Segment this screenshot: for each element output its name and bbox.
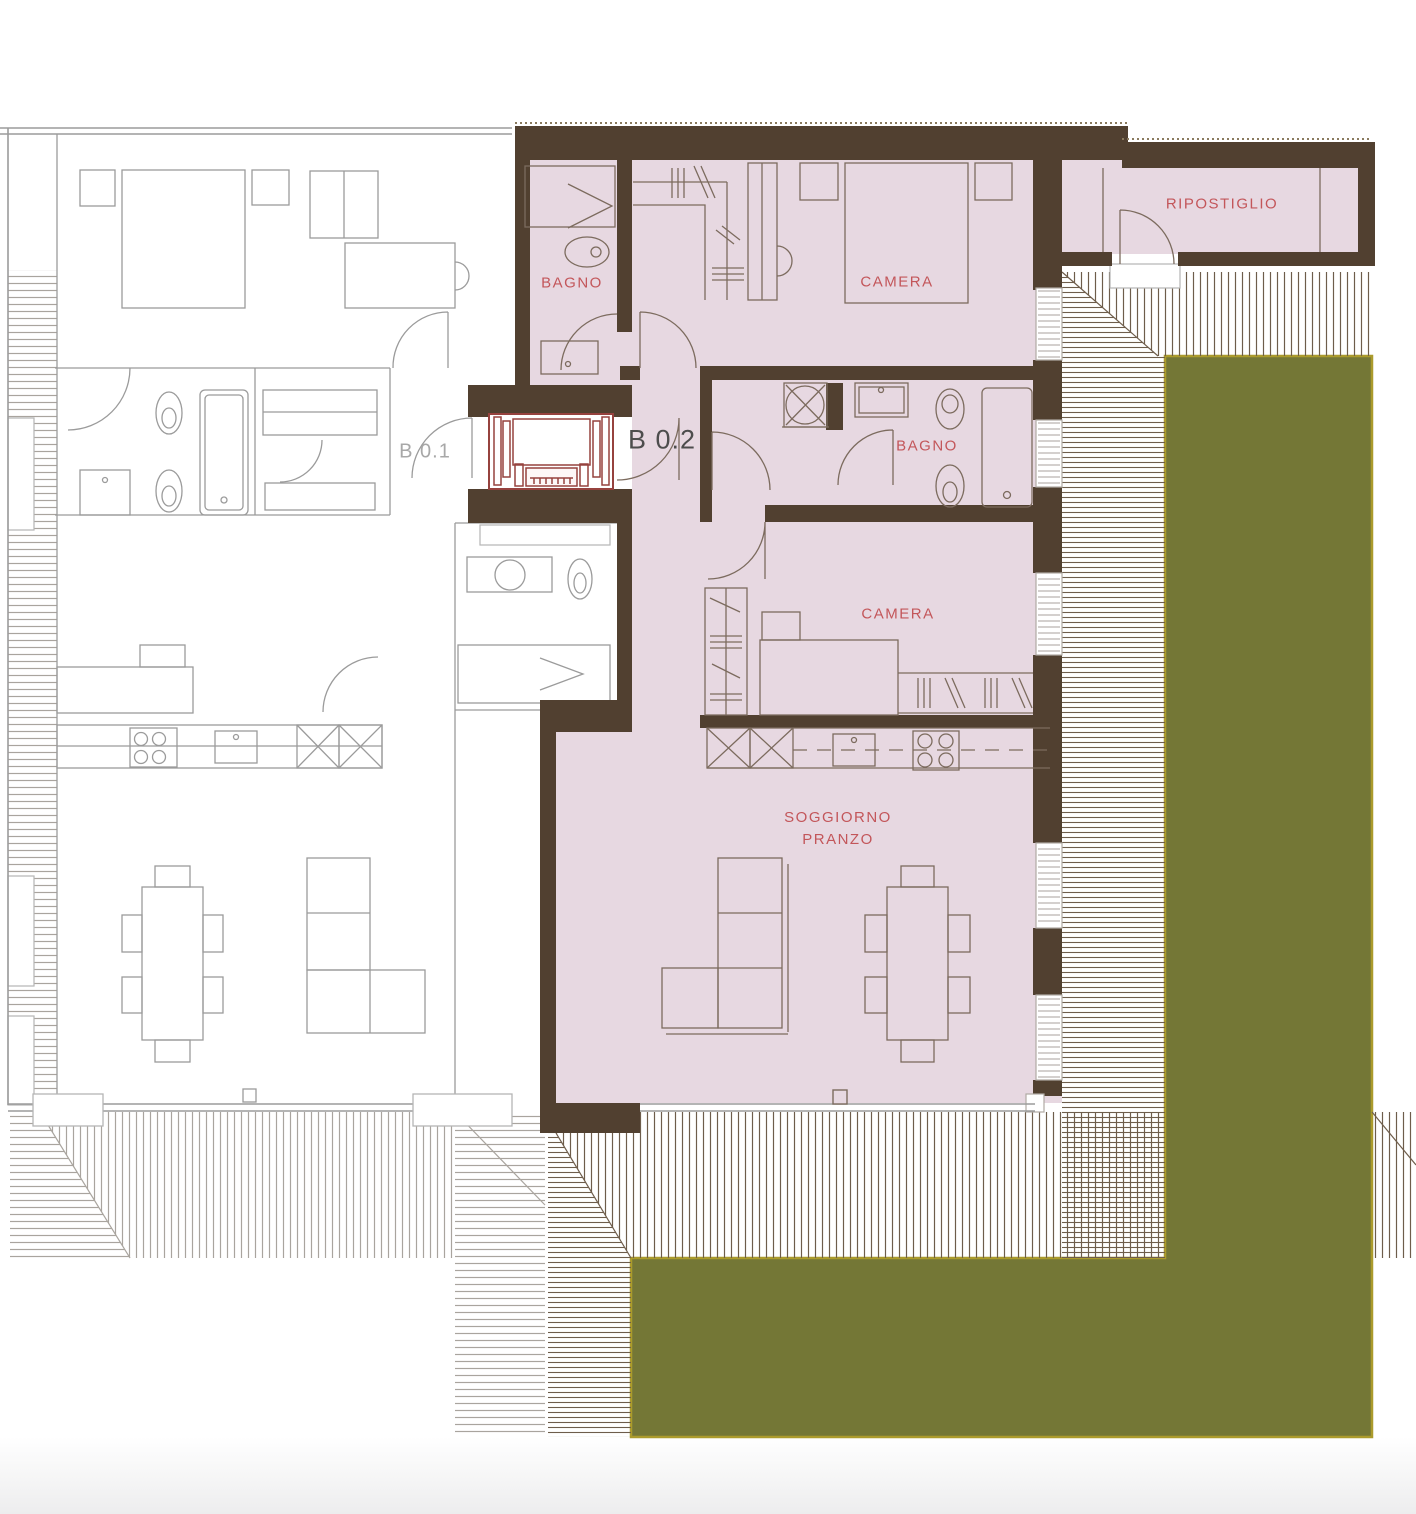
label-soggiorno-line2: PRANZO <box>784 829 892 851</box>
label-soggiorno: SOGGIORNO PRANZO <box>784 807 892 851</box>
label-bagno-2: BAGNO <box>896 438 958 455</box>
floor-plan-drawing <box>0 0 1416 1514</box>
label-camera-2: CAMERA <box>861 606 934 623</box>
label-neighbor-b01: B 0.1 <box>399 441 451 464</box>
elevator <box>480 414 613 545</box>
label-unit-b02: B 0.2 <box>628 425 696 456</box>
label-bagno-1: BAGNO <box>541 275 603 292</box>
label-camera-1: CAMERA <box>860 274 933 291</box>
label-soggiorno-line1: SOGGIORNO <box>784 807 892 829</box>
label-ripostiglio: RIPOSTIGLIO <box>1166 196 1278 213</box>
floor-plan: BAGNO CAMERA BAGNO CAMERA SOGGIORNO PRAN… <box>0 0 1416 1514</box>
page-bottom-gradient <box>0 1437 1416 1514</box>
